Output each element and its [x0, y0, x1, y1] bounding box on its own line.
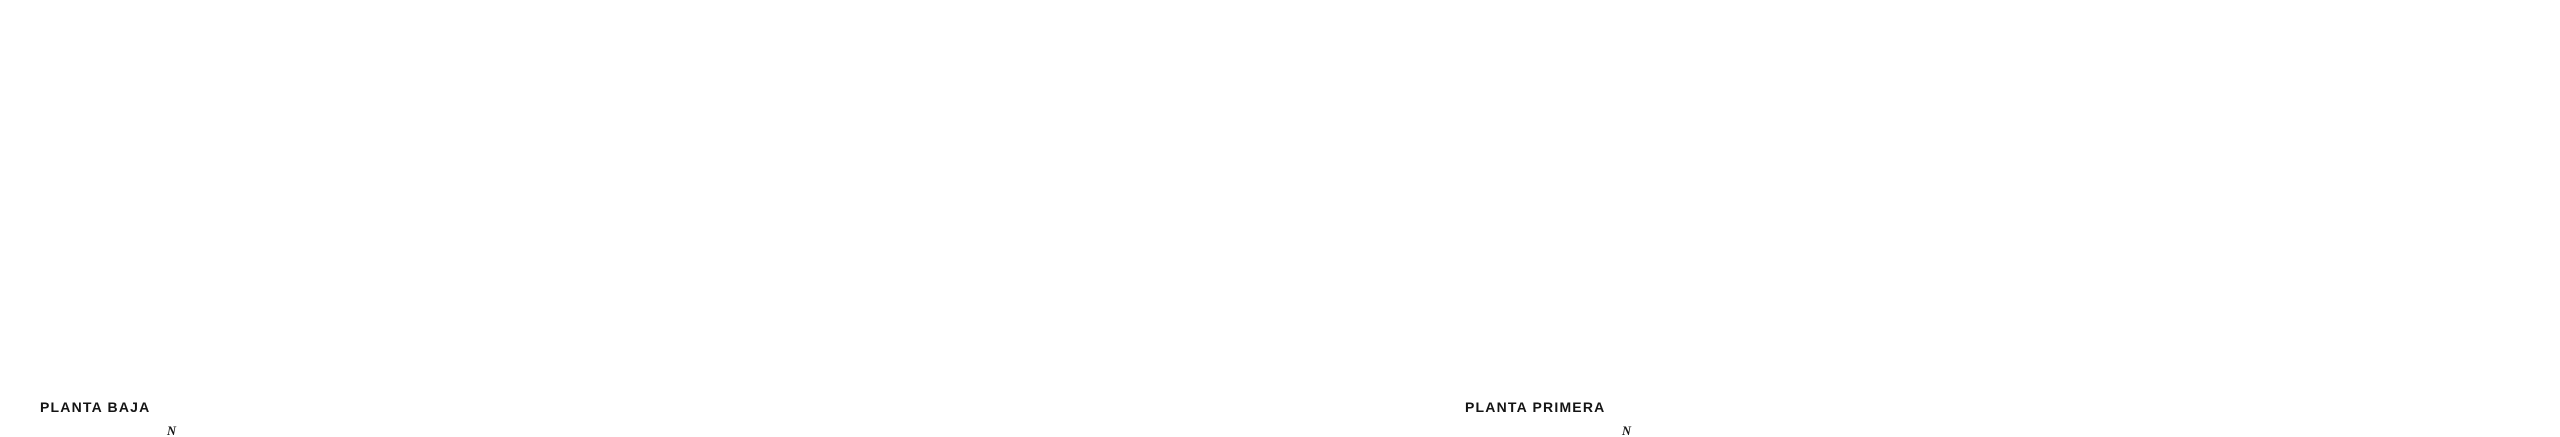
- architectural-drawing-sheet: PLANTA BAJA N PLANTA PRIMERA N: [0, 0, 2560, 437]
- titles: PLANTA BAJA N PLANTA PRIMERA N: [40, 399, 1632, 437]
- plan-label-planta-baja: PLANTA BAJA: [40, 399, 150, 415]
- plan-label-planta-primera: PLANTA PRIMERA: [1465, 399, 1605, 415]
- floor-plans-drawing: PLANTA BAJA N PLANTA PRIMERA N: [0, 0, 2560, 437]
- north-letter: N: [1621, 424, 1632, 437]
- north-letter: N: [166, 424, 177, 437]
